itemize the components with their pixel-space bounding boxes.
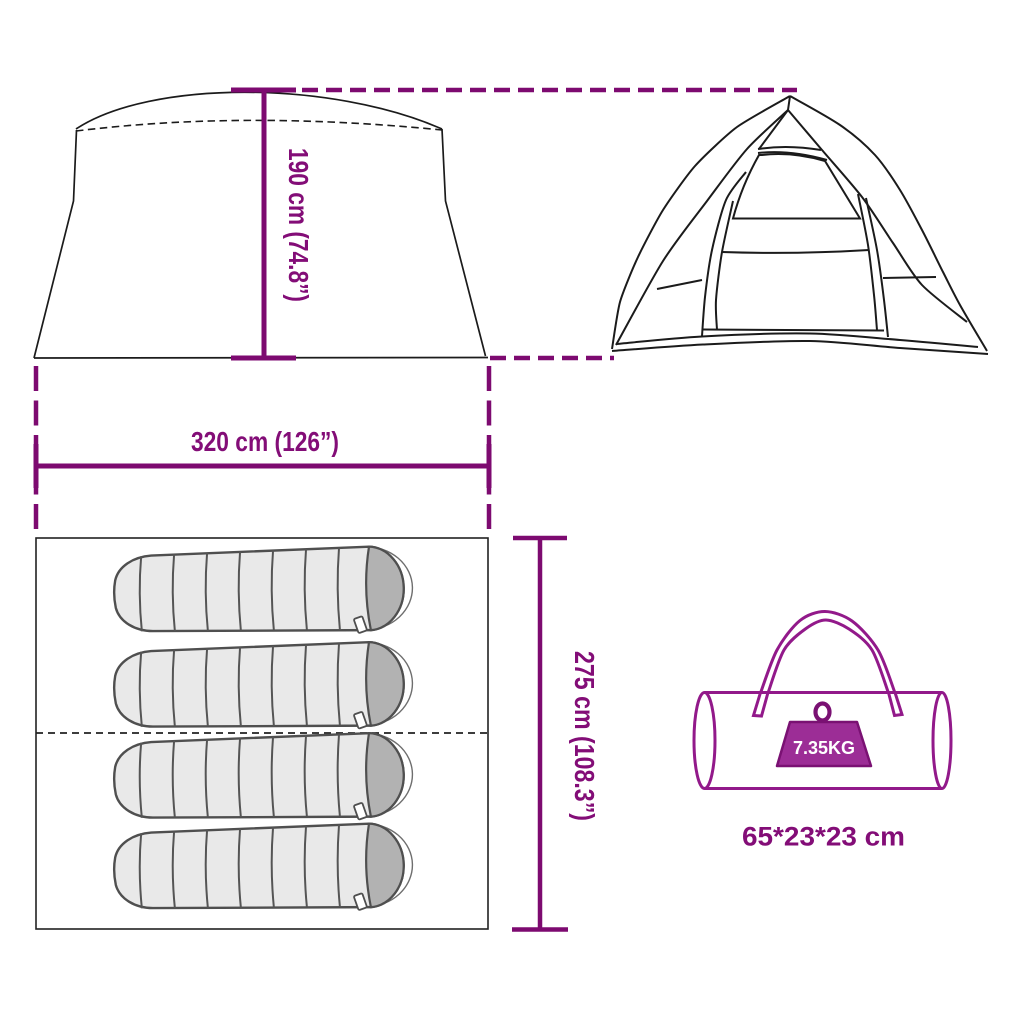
svg-text:65*23*23 cm: 65*23*23 cm: [742, 822, 905, 852]
svg-text:275 cm (108.3”): 275 cm (108.3”): [569, 651, 600, 821]
svg-text:190 cm (74.8”): 190 cm (74.8”): [283, 148, 314, 302]
svg-text:7.35KG: 7.35KG: [793, 737, 855, 758]
svg-text:320 cm (126”): 320 cm (126”): [191, 426, 339, 457]
